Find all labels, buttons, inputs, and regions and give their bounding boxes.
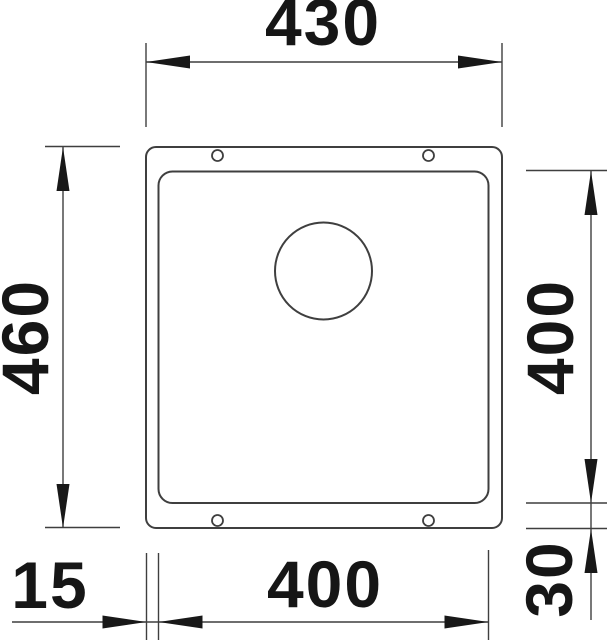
arrowhead-right-icon: [103, 616, 147, 629]
mounting-hole-top-left: [212, 150, 223, 161]
arrowhead-up-icon: [57, 147, 70, 191]
arrowhead-down-icon: [585, 459, 598, 503]
dim-label-bottom-left-offset: 15: [11, 552, 88, 618]
arrowhead-right-icon: [458, 56, 502, 69]
dim-label-right-height: 400: [517, 279, 583, 395]
dim-label-bottom-right-offset: 30: [516, 540, 582, 617]
arrowhead-left-icon: [159, 616, 203, 629]
mounting-hole-bottom-right: [423, 515, 434, 526]
mounting-hole-top-right: [423, 150, 434, 161]
sink-outline: [146, 147, 502, 528]
arrowhead-up-icon: [585, 171, 598, 215]
dim-label-left-height: 460: [0, 279, 58, 395]
arrowhead-right-icon: [445, 616, 489, 629]
mounting-hole-bottom-left: [212, 515, 223, 526]
dim-label-bottom-width: 400: [267, 551, 383, 617]
sink-bowl-outline: [159, 172, 489, 504]
drain-hole-circle: [275, 223, 372, 320]
arrowhead-left-icon: [146, 56, 190, 69]
sink-outer-rim: [146, 147, 502, 528]
arrowhead-down-icon: [57, 484, 70, 528]
sink-technical-drawing: 430 460 400 400 15 30: [0, 0, 608, 640]
arrowhead-up-icon: [585, 529, 598, 573]
dim-label-top-width: 430: [265, 0, 381, 55]
